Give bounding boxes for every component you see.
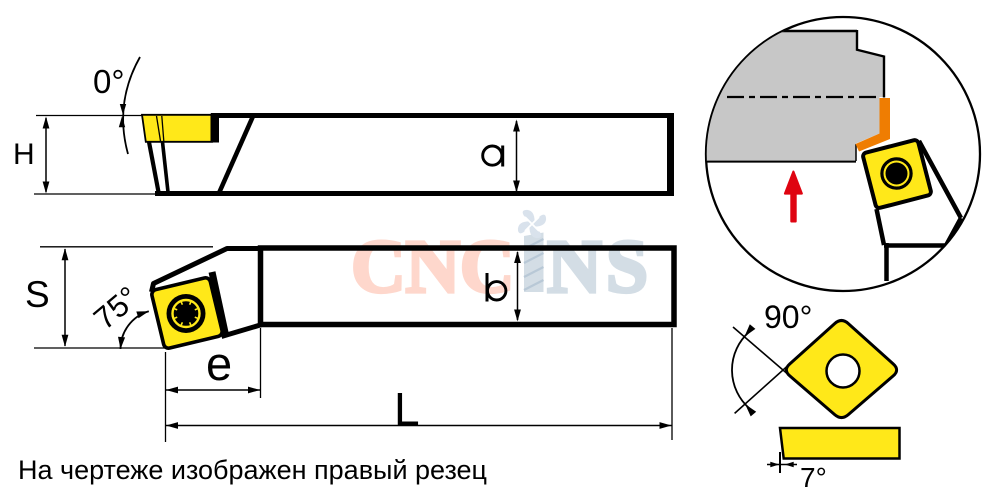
svg-text:e: e <box>206 337 232 390</box>
svg-text:S: S <box>25 274 50 315</box>
svg-text:90°: 90° <box>764 299 812 335</box>
svg-text:0°: 0° <box>93 63 125 100</box>
svg-text:7°: 7° <box>800 462 827 493</box>
svg-text:H: H <box>13 138 35 171</box>
svg-text:75°: 75° <box>87 279 145 336</box>
svg-text:L: L <box>394 383 420 435</box>
svg-text:NS: NS <box>547 225 652 309</box>
svg-text:На чертеже изображен правый ре: На чертеже изображен правый резец <box>18 455 487 485</box>
